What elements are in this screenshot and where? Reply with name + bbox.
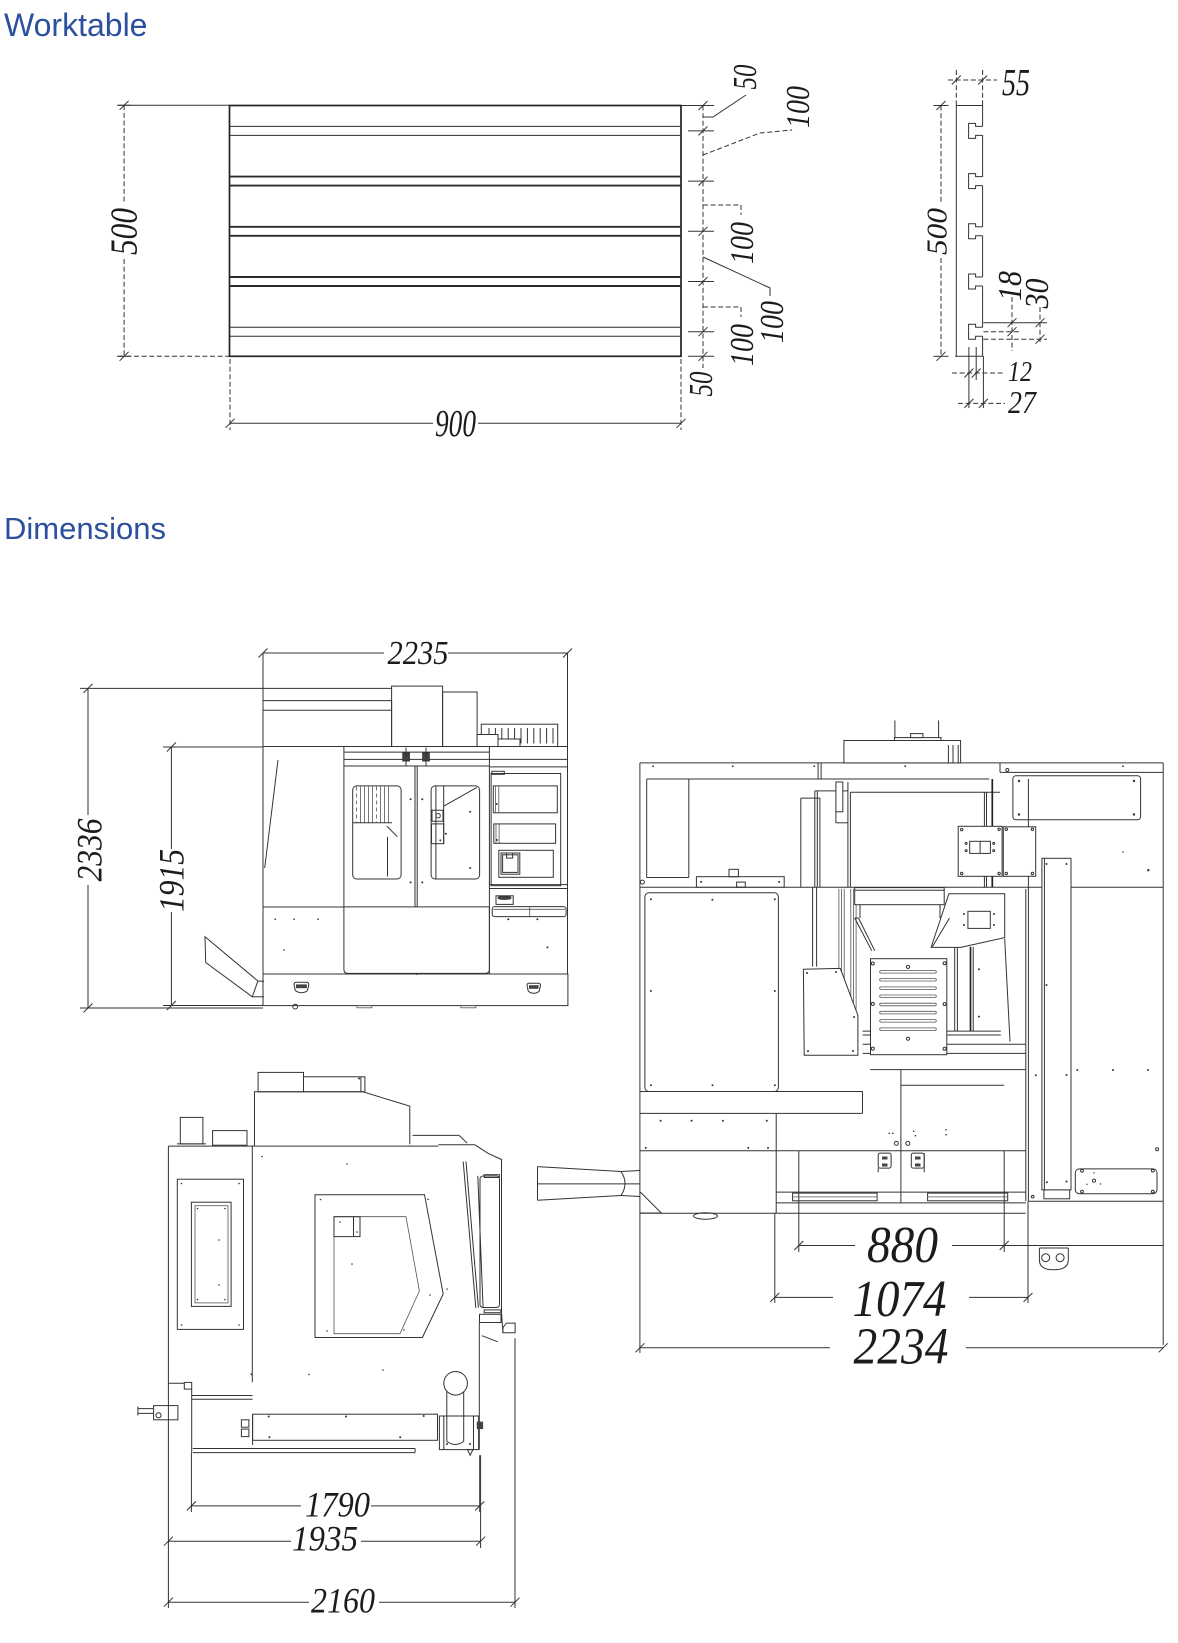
svg-text:2336: 2336 <box>70 819 110 882</box>
svg-text:Worktable: Worktable <box>4 7 147 43</box>
svg-text:100: 100 <box>724 324 761 366</box>
svg-text:50: 50 <box>727 65 764 90</box>
svg-text:2234: 2234 <box>854 1319 949 1376</box>
svg-text:Dimensions: Dimensions <box>4 511 166 546</box>
svg-text:2235: 2235 <box>388 635 449 672</box>
svg-text:1935: 1935 <box>292 1519 358 1559</box>
svg-text:900: 900 <box>435 403 476 445</box>
svg-text:500: 500 <box>923 208 954 255</box>
svg-text:100: 100 <box>724 222 761 264</box>
svg-text:55: 55 <box>1002 62 1030 104</box>
svg-text:880: 880 <box>867 1217 938 1274</box>
svg-text:1915: 1915 <box>152 849 192 912</box>
svg-text:30: 30 <box>1019 279 1056 310</box>
svg-text:27: 27 <box>1008 384 1038 420</box>
svg-text:500: 500 <box>104 208 146 255</box>
svg-text:2160: 2160 <box>311 1581 375 1621</box>
svg-text:50: 50 <box>683 372 720 397</box>
svg-text:100: 100 <box>780 86 817 128</box>
